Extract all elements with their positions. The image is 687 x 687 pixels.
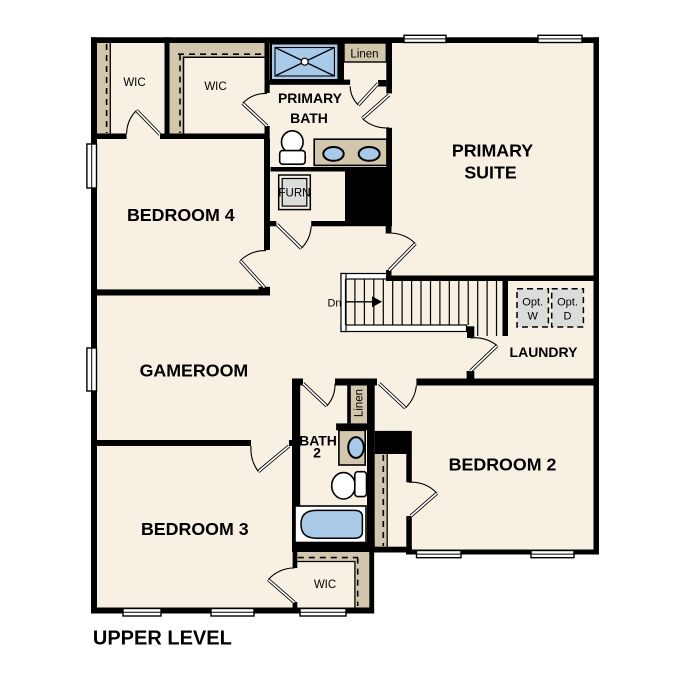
svg-text:BEDROOM 4: BEDROOM 4 [127, 205, 235, 225]
svg-text:Linen: Linen [354, 389, 366, 417]
svg-text:WIC: WIC [123, 77, 145, 89]
svg-text:BEDROOM 2: BEDROOM 2 [449, 455, 557, 475]
svg-text:Linen: Linen [350, 49, 378, 61]
svg-text:GAMEROOM: GAMEROOM [140, 361, 249, 381]
svg-text:Dn: Dn [327, 298, 341, 310]
svg-text:W: W [528, 311, 539, 323]
svg-text:Opt.: Opt. [522, 297, 543, 309]
svg-text:WIC: WIC [314, 579, 336, 591]
svg-text:UPPER LEVEL: UPPER LEVEL [93, 628, 232, 650]
svg-text:LAUNDRY: LAUNDRY [510, 344, 579, 360]
svg-text:PRIMARY: PRIMARY [452, 141, 533, 161]
svg-text:SUITE: SUITE [464, 162, 517, 182]
svg-text:FURN: FURN [279, 188, 311, 200]
svg-text:2: 2 [313, 444, 321, 460]
svg-text:PRIMARY: PRIMARY [278, 90, 343, 106]
svg-text:BEDROOM 3: BEDROOM 3 [141, 519, 249, 539]
svg-text:BATH: BATH [290, 110, 328, 126]
svg-text:Opt.: Opt. [557, 297, 578, 309]
svg-text:WIC: WIC [204, 81, 226, 93]
svg-text:D: D [564, 311, 572, 323]
